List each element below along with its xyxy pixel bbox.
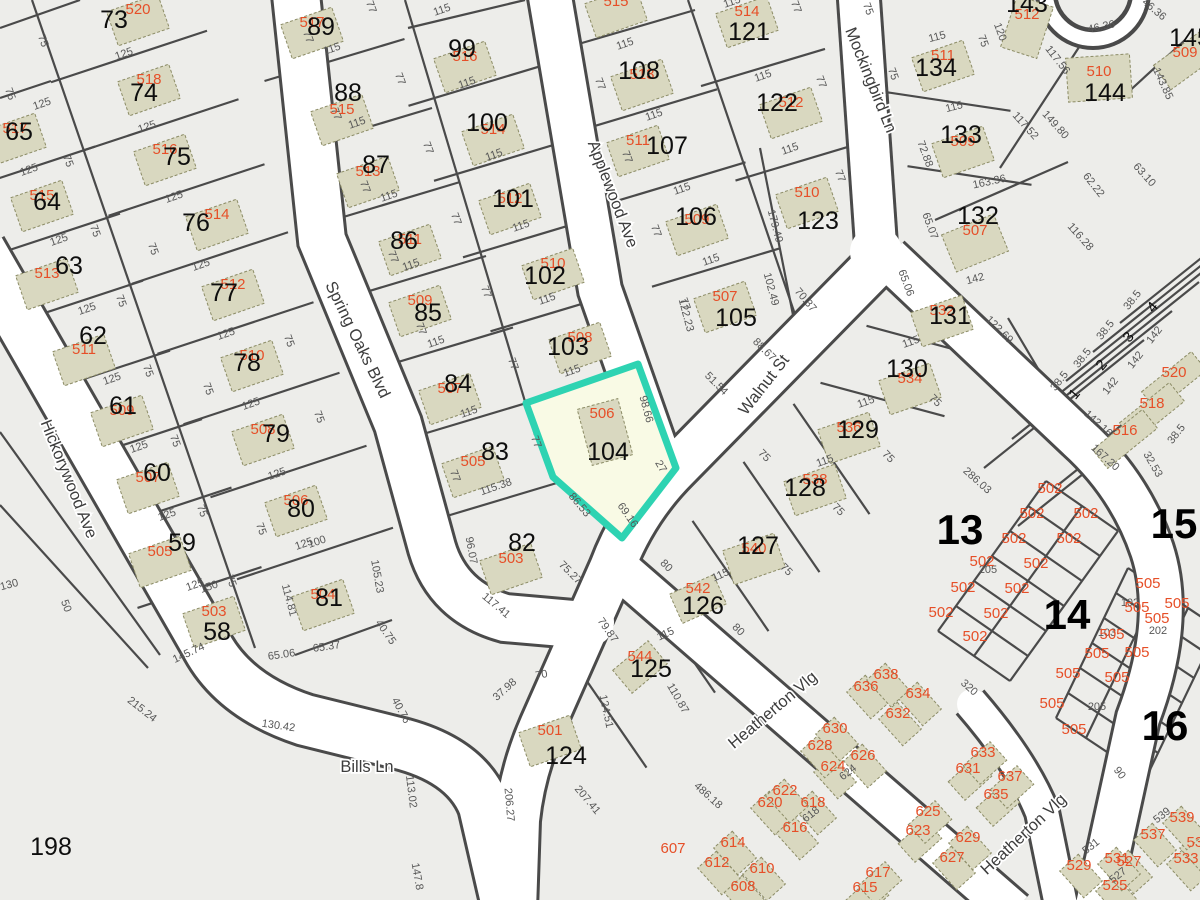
house-number: 624 [820, 758, 845, 775]
dimension-label: 205 [1088, 701, 1106, 713]
lot-number: 59 [168, 529, 196, 557]
house-number: 608 [730, 878, 755, 895]
house-number: 505 [1144, 610, 1169, 627]
lot-number: 129 [837, 416, 879, 444]
house-number: 510 [794, 184, 819, 201]
house-number: 502 [1056, 530, 1081, 547]
lot-number: 76 [182, 209, 210, 237]
house-number: 633 [970, 744, 995, 761]
lot-number: 64 [33, 188, 61, 216]
house-number: 505 [1099, 626, 1124, 643]
lot-number: 102 [524, 262, 566, 290]
lot-number: 83 [481, 438, 509, 466]
house-number: 520 [1161, 364, 1186, 381]
house-number: 505 [1061, 721, 1086, 738]
lot-number: 132 [957, 202, 999, 230]
house-number: 505 [1084, 645, 1109, 662]
house-number: 515 [603, 0, 628, 10]
house-number: 502 [1073, 505, 1098, 522]
house-number: 502 [983, 605, 1008, 622]
house-number: 525 [1102, 877, 1127, 894]
lot-number: 79 [262, 420, 290, 448]
lot-number: 84 [444, 370, 472, 398]
lot-number: 101 [492, 185, 534, 213]
lot-number: 82 [508, 529, 536, 557]
lot-number: 77 [210, 279, 238, 307]
lot-number: 144 [1084, 79, 1126, 107]
parcel-map-canvas[interactable]: 1251251251251251251251251251251251251251… [0, 0, 1200, 900]
house-number: 502 [962, 628, 987, 645]
lot-number: 122 [756, 89, 798, 117]
house-number: 607 [660, 840, 685, 857]
lot-number: 123 [797, 207, 839, 235]
house-number: 531 [1104, 850, 1129, 867]
house-number: 502 [1001, 530, 1026, 547]
lot-number: 16 [1142, 702, 1189, 749]
house-number: 623 [905, 822, 930, 839]
lot-number: 106 [675, 203, 717, 231]
lot-number: 131 [929, 302, 971, 330]
lot-number: 80 [287, 495, 315, 523]
house-number: 520 [125, 1, 150, 18]
lot-number: 85 [414, 299, 442, 327]
house-number: 529 [1066, 857, 1091, 874]
house-number: 614 [720, 834, 745, 851]
lot-number: 73 [100, 6, 128, 34]
lot-number: 127 [737, 532, 779, 560]
house-number: 502 [1004, 580, 1029, 597]
house-number: 612 [704, 854, 729, 871]
lot-number: 61 [109, 392, 137, 420]
house-number: 635 [983, 786, 1008, 803]
house-number: 505 [1104, 669, 1129, 686]
lot-number: 100 [466, 109, 508, 137]
house-number: 628 [807, 737, 832, 754]
house-number: 629 [955, 829, 980, 846]
house-number: 533 [1173, 850, 1198, 867]
lot-number: 134 [915, 54, 957, 82]
lot-number: 108 [618, 57, 660, 85]
house-number: 632 [885, 705, 910, 722]
lot-number: 107 [646, 132, 688, 160]
house-number: 502 [969, 553, 994, 570]
house-number: 502 [1019, 505, 1044, 522]
house-number: 502 [1037, 480, 1062, 497]
house-number: 506 [589, 405, 614, 422]
lot-number: 65 [5, 118, 33, 146]
lot-number: 62 [79, 322, 107, 350]
house-number: 502 [928, 604, 953, 621]
house-number: 539 [1169, 809, 1194, 826]
lot-number: 143 [1006, 0, 1048, 18]
lot-number: 88 [334, 79, 362, 107]
lot-number: 89 [307, 13, 335, 41]
house-number: 502 [1023, 555, 1048, 572]
lot-number: 130 [886, 355, 928, 383]
street-name: Bills Ln [340, 758, 393, 776]
house-number: 518 [1139, 395, 1164, 412]
house-number: 537 [1140, 826, 1165, 843]
dimension-label: 70 [534, 668, 548, 682]
house-number: 637 [997, 768, 1022, 785]
house-number: 505 [1055, 665, 1080, 682]
house-number: 618 [800, 794, 825, 811]
lot-number: 74 [130, 79, 158, 107]
house-number: 507 [712, 288, 737, 305]
lot-number: 125 [630, 655, 672, 683]
lot-number: 78 [233, 349, 261, 377]
lot-number: 145 [1169, 24, 1200, 52]
lot-number: 133 [940, 121, 982, 149]
house-number: 638 [873, 666, 898, 683]
lot-number: 13 [937, 506, 984, 553]
house-number: 505 [1039, 695, 1064, 712]
lot-number: 75 [163, 143, 191, 171]
lot-number: 87 [362, 151, 390, 179]
parcel-map: 1251251251251251251251251251251251251251… [0, 0, 1200, 900]
house-number: 627 [939, 849, 964, 866]
lot-number: 103 [547, 333, 589, 361]
house-number: 625 [915, 803, 940, 820]
house-number: 622 [772, 782, 797, 799]
lot-number: 128 [784, 474, 826, 502]
lot-number: 58 [203, 618, 231, 646]
lot-number: 63 [55, 252, 83, 280]
house-number: 535 [1186, 834, 1200, 851]
lot-number: 198 [30, 833, 72, 861]
lot-number: 15 [1151, 500, 1198, 547]
house-number: 610 [749, 860, 774, 877]
lot-number: 86 [390, 227, 418, 255]
lot-number: 81 [315, 584, 343, 612]
house-number: 617 [865, 864, 890, 881]
house-number: 505 [1124, 644, 1149, 661]
house-number: 631 [955, 760, 980, 777]
house-number: 505 [1135, 575, 1160, 592]
house-number: 510 [1086, 63, 1111, 80]
lot-number: 126 [682, 592, 724, 620]
lot-number: 99 [448, 35, 476, 63]
house-number: 626 [850, 747, 875, 764]
house-number: 516 [1112, 422, 1137, 439]
house-number: 502 [950, 579, 975, 596]
house-number: 634 [905, 685, 930, 702]
house-number: 501 [537, 722, 562, 739]
lot-number: 121 [728, 18, 770, 46]
house-number: 630 [822, 720, 847, 737]
lot-number: 105 [715, 304, 757, 332]
lot-number: 124 [545, 742, 587, 770]
lot-number: 60 [143, 459, 171, 487]
house-number: 616 [782, 819, 807, 836]
lot-number: 104 [587, 438, 629, 466]
house-number: 615 [852, 879, 877, 896]
lot-number: 14 [1044, 591, 1091, 638]
